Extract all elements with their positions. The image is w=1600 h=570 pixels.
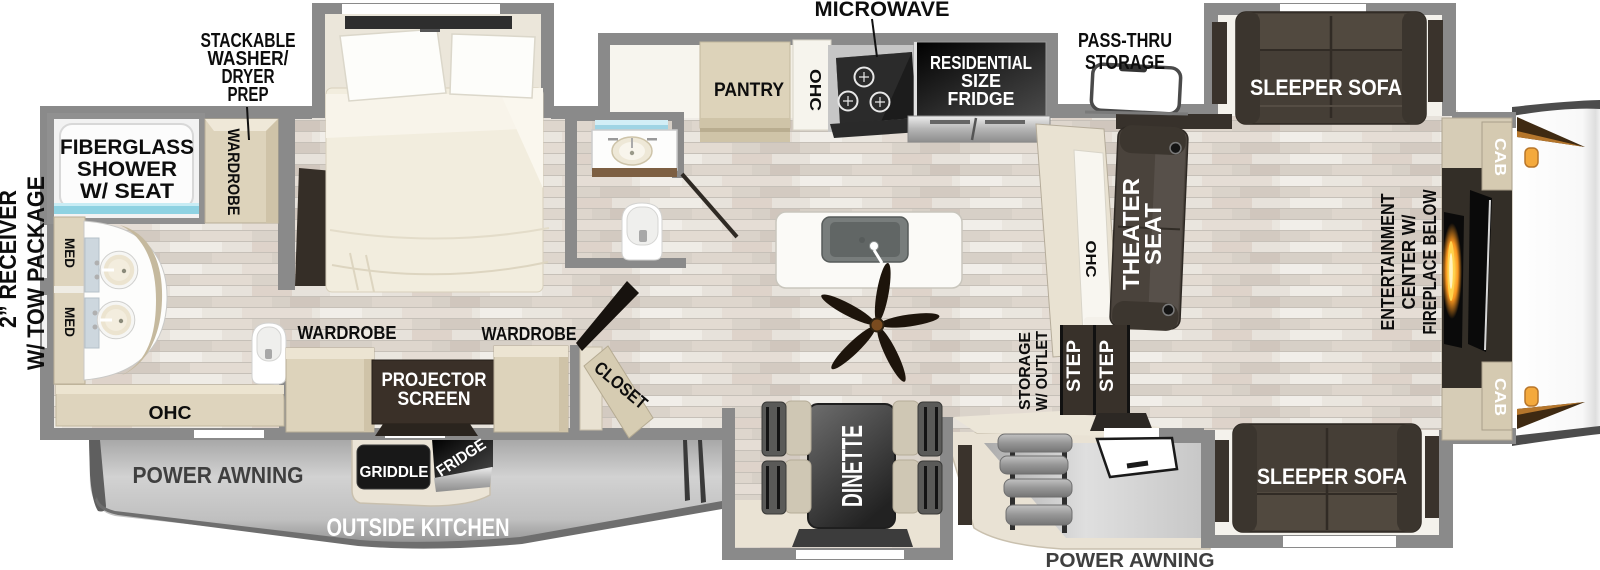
svg-text:CENTER W/: CENTER W/ bbox=[1399, 215, 1419, 310]
svg-text:GRIDDLE: GRIDDLE bbox=[360, 464, 429, 481]
svg-text:SHOWER: SHOWER bbox=[77, 158, 177, 181]
svg-text:FIBERGLASS: FIBERGLASS bbox=[60, 136, 194, 159]
svg-text:SIZE: SIZE bbox=[961, 71, 1001, 91]
svg-text:CAB: CAB bbox=[1491, 378, 1508, 416]
svg-text:SLEEPER SOFA: SLEEPER SOFA bbox=[1257, 464, 1407, 489]
svg-text:OHC: OHC bbox=[149, 403, 192, 423]
svg-text:W/ SEAT: W/ SEAT bbox=[80, 180, 174, 203]
svg-text:DINETTE: DINETTE bbox=[837, 425, 869, 507]
svg-text:MED: MED bbox=[62, 238, 78, 268]
svg-text:WARDROBE: WARDROBE bbox=[224, 129, 243, 216]
svg-text:W/ OUTLET: W/ OUTLET bbox=[1034, 331, 1051, 411]
svg-text:WARDROBE: WARDROBE bbox=[482, 324, 577, 344]
svg-text:FIREPLACE BELOW: FIREPLACE BELOW bbox=[1420, 189, 1440, 334]
svg-text:SLEEPER SOFA: SLEEPER SOFA bbox=[1250, 75, 1402, 100]
svg-text:STORAGE: STORAGE bbox=[1017, 332, 1034, 410]
svg-text:WARDROBE: WARDROBE bbox=[298, 323, 397, 343]
svg-text:OHC: OHC bbox=[806, 69, 823, 112]
svg-text:OUTSIDE KITCHEN: OUTSIDE KITCHEN bbox=[327, 514, 510, 542]
svg-text:SCREEN: SCREEN bbox=[398, 389, 471, 410]
svg-text:CAB: CAB bbox=[1491, 138, 1508, 176]
svg-text:STEP: STEP bbox=[1064, 340, 1085, 392]
svg-text:ENTERTAINMENT: ENTERTAINMENT bbox=[1378, 194, 1398, 331]
svg-text:OHC: OHC bbox=[1082, 241, 1099, 278]
svg-text:POWER AWNING: POWER AWNING bbox=[1046, 550, 1215, 570]
svg-text:POWER AWNING: POWER AWNING bbox=[133, 462, 304, 488]
svg-text:PANTRY: PANTRY bbox=[714, 80, 784, 101]
svg-text:STEP: STEP bbox=[1097, 340, 1118, 392]
svg-text:W/ TOW PACKAGE: W/ TOW PACKAGE bbox=[23, 176, 50, 370]
svg-text:STORAGE: STORAGE bbox=[1085, 52, 1165, 74]
svg-text:PASS-THRU: PASS-THRU bbox=[1078, 30, 1172, 52]
svg-text:FRIDGE: FRIDGE bbox=[948, 89, 1015, 109]
svg-text:2” RECEIVER: 2” RECEIVER bbox=[0, 190, 22, 328]
svg-text:PREP: PREP bbox=[228, 84, 269, 106]
svg-text:RESIDENTIAL: RESIDENTIAL bbox=[930, 53, 1032, 73]
svg-text:PROJECTOR: PROJECTOR bbox=[382, 370, 487, 391]
svg-text:MED: MED bbox=[62, 307, 78, 337]
svg-text:MICROWAVE: MICROWAVE bbox=[815, 0, 950, 21]
svg-text:SEAT: SEAT bbox=[1140, 203, 1166, 265]
